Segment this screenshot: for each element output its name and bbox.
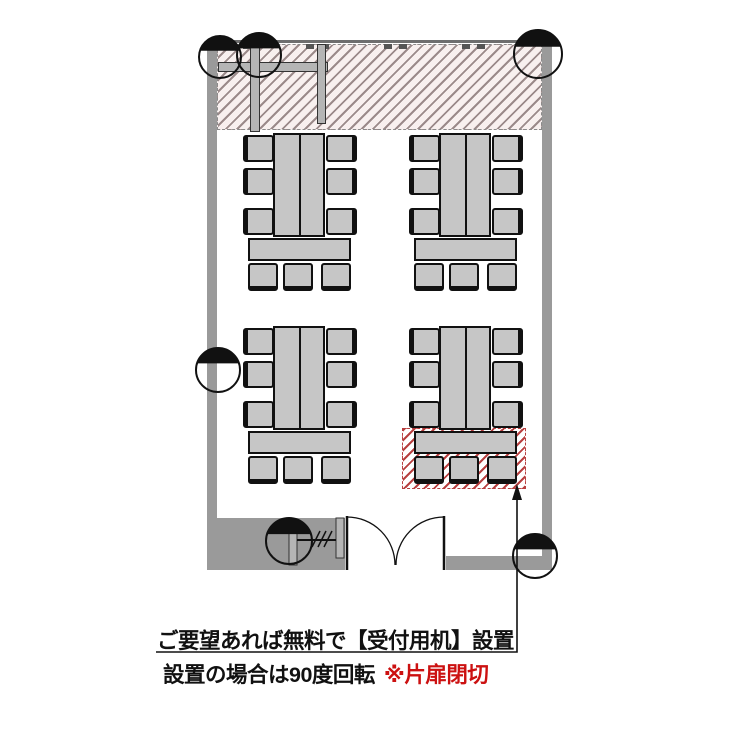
table-long	[273, 326, 325, 430]
chair	[326, 328, 357, 355]
table-end	[414, 431, 517, 454]
chair	[487, 263, 517, 291]
front-hatched-zone	[217, 44, 542, 130]
table-end	[248, 238, 351, 261]
chair	[283, 456, 313, 484]
rail-post-right	[317, 44, 326, 124]
table-end	[248, 431, 351, 454]
rail-post-left	[250, 44, 260, 132]
chair	[243, 361, 274, 388]
chair	[248, 456, 278, 484]
chair	[492, 401, 523, 428]
chair	[243, 135, 274, 162]
chair	[492, 135, 523, 162]
wall-top	[207, 40, 552, 43]
chair	[449, 456, 479, 484]
wall-bottom-right	[446, 556, 552, 570]
note-line-2-red: ※片扉閉切	[384, 663, 488, 687]
table-divider	[299, 135, 301, 235]
table-group-4	[409, 326, 523, 486]
chair	[409, 208, 440, 235]
chair	[283, 263, 313, 291]
chair	[321, 263, 351, 291]
chair	[326, 208, 357, 235]
table-group-1	[243, 133, 357, 293]
chair	[409, 401, 440, 428]
table-long	[439, 133, 491, 237]
chair	[326, 401, 357, 428]
chair	[487, 456, 517, 484]
column-symbol-icon	[196, 348, 240, 392]
chair	[414, 263, 444, 291]
wall-bottom-left-block	[207, 518, 345, 570]
chair	[492, 328, 523, 355]
table-group-3	[243, 326, 357, 486]
partition-track-ticks	[228, 44, 538, 49]
chair	[243, 168, 274, 195]
floorplan-canvas: ご要望あれば無料で【受付用机】設置 設置の場合は90度回転※片扉閉切	[0, 0, 750, 750]
whiteboard-rail	[218, 62, 328, 72]
chair	[248, 263, 278, 291]
chair	[409, 361, 440, 388]
chair	[414, 456, 444, 484]
note-line-2: 設置の場合は90度回転※片扉閉切	[163, 658, 488, 689]
chair	[409, 168, 440, 195]
double-door	[347, 516, 444, 570]
chair	[492, 168, 523, 195]
wall-left	[207, 41, 217, 570]
chair	[326, 135, 357, 162]
chair	[492, 361, 523, 388]
chair	[243, 401, 274, 428]
chair	[409, 328, 440, 355]
door-swing-arc-left	[347, 517, 395, 565]
note-line-1: ご要望あれば無料で【受付用机】設置	[157, 624, 514, 655]
table-divider	[465, 328, 467, 428]
chair	[326, 361, 357, 388]
table-divider	[465, 135, 467, 235]
chair	[492, 208, 523, 235]
chair	[326, 168, 357, 195]
chair	[409, 135, 440, 162]
chair	[449, 263, 479, 291]
chair	[243, 208, 274, 235]
table-end	[414, 238, 517, 261]
door-swing-arc-right	[396, 517, 444, 565]
wall-right	[542, 41, 552, 570]
table-long	[439, 326, 491, 430]
chair	[321, 456, 351, 484]
table-divider	[299, 328, 301, 428]
table-group-2	[409, 133, 523, 293]
note-line-2-black: 設置の場合は90度回転	[163, 663, 375, 687]
table-long	[273, 133, 325, 237]
chair	[243, 328, 274, 355]
